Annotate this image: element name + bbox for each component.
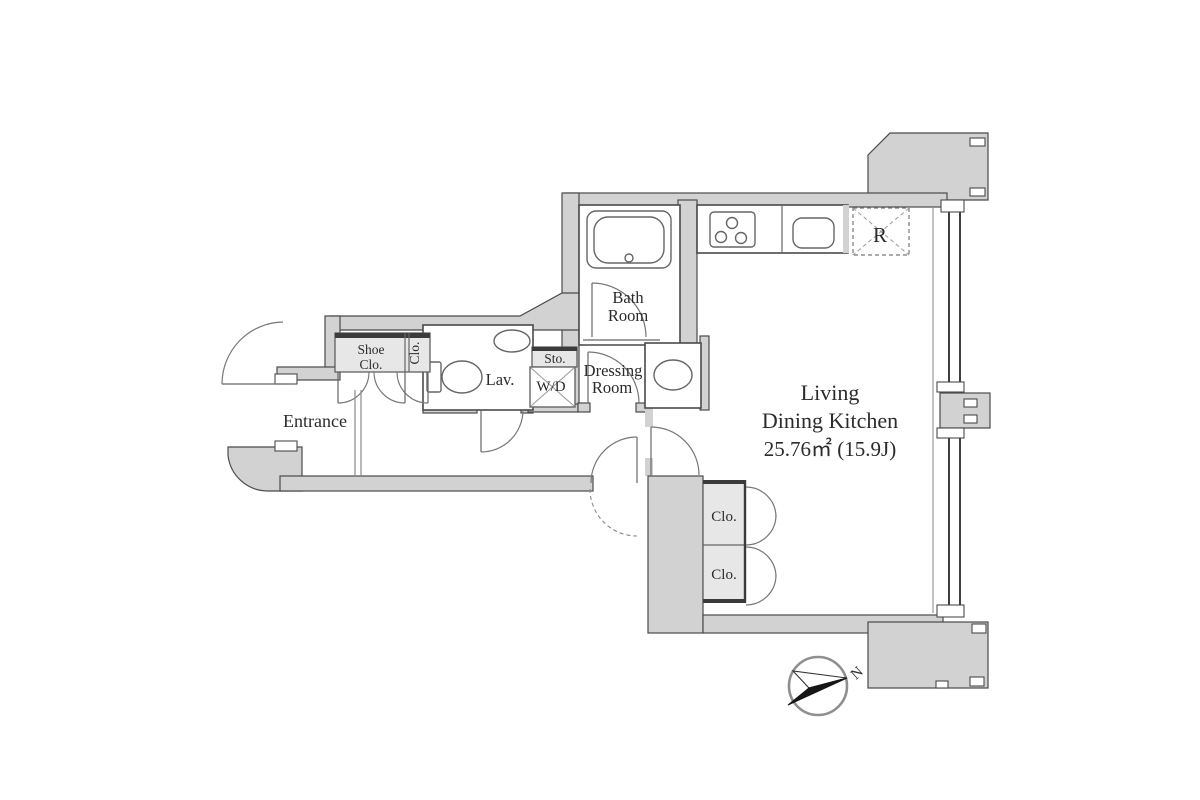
lav-door-arc — [481, 410, 523, 452]
shoe-closet-label: Shoe — [358, 342, 385, 357]
window-cap — [941, 200, 964, 212]
pillar-notch — [972, 624, 986, 633]
ldk-door — [651, 427, 699, 475]
pillar-notch — [970, 188, 985, 196]
shoe-closet-top-edge — [335, 333, 430, 338]
wall-bath-right — [678, 200, 697, 345]
ldk-area-label: 25.76㎡ (15.9J) — [764, 437, 896, 461]
wall-closet-block — [648, 476, 703, 633]
ldk-label: Dining Kitchen — [762, 408, 898, 433]
closet-door-arc — [746, 487, 776, 517]
bath-room-label: Bath — [612, 288, 644, 307]
door-post — [645, 458, 653, 476]
compass-north-label: N — [848, 664, 867, 683]
lavatory-label: Lav. — [486, 370, 515, 389]
storage-label: Sto. — [544, 351, 565, 366]
hall-closet-label: Clo. — [407, 342, 422, 365]
bathtub-drain — [625, 254, 633, 262]
refrigerator-label: R — [873, 223, 887, 247]
wall-dressing-bottom — [578, 403, 590, 412]
compass-icon — [788, 657, 847, 715]
shoe-closet-door-arc — [374, 372, 405, 403]
corridor-door — [590, 437, 637, 536]
shoe-closet-door-arc — [338, 372, 369, 403]
pillar-notch — [964, 415, 977, 423]
closet-lower-label: Clo. — [711, 567, 736, 583]
pillar-notch — [970, 677, 984, 686]
entrance-label: Entrance — [283, 411, 347, 431]
ldk-label: Living — [801, 380, 860, 405]
stove-burner — [736, 233, 747, 244]
counter-end-wall — [843, 205, 849, 253]
bath-room-label: Room — [608, 306, 649, 325]
washbasin — [654, 360, 692, 390]
closet-door-arc — [746, 515, 776, 545]
dressing-room-label: Room — [592, 378, 633, 397]
pillar-notch — [970, 138, 985, 146]
entrance-door — [222, 322, 297, 451]
window-cap — [937, 428, 964, 438]
stove-burner — [716, 232, 727, 243]
stove-burner — [727, 218, 738, 229]
floor-plan-page: Entrance Shoe Clo. Clo. Lav. Sto. W/D Dr… — [0, 0, 1200, 800]
closet-door-arc — [746, 547, 776, 577]
lav-sink — [494, 330, 530, 352]
window-cap — [937, 605, 964, 617]
pillar-notch — [936, 681, 948, 688]
ldk-closets — [703, 480, 776, 605]
floor-plan-drawing: Entrance Shoe Clo. Clo. Lav. Sto. W/D Dr… — [0, 0, 1200, 800]
pillar-notch — [964, 399, 977, 407]
closet-upper-label: Clo. — [711, 509, 736, 525]
closet-door-arc — [746, 575, 776, 605]
washer-dryer-label: W/D — [536, 379, 565, 395]
window-cap — [937, 382, 964, 392]
wall-corridor-bottom — [280, 476, 593, 491]
kitchen-sink — [793, 218, 834, 248]
shoe-closet-label: Clo. — [360, 357, 383, 372]
toilet-bowl — [442, 361, 482, 393]
